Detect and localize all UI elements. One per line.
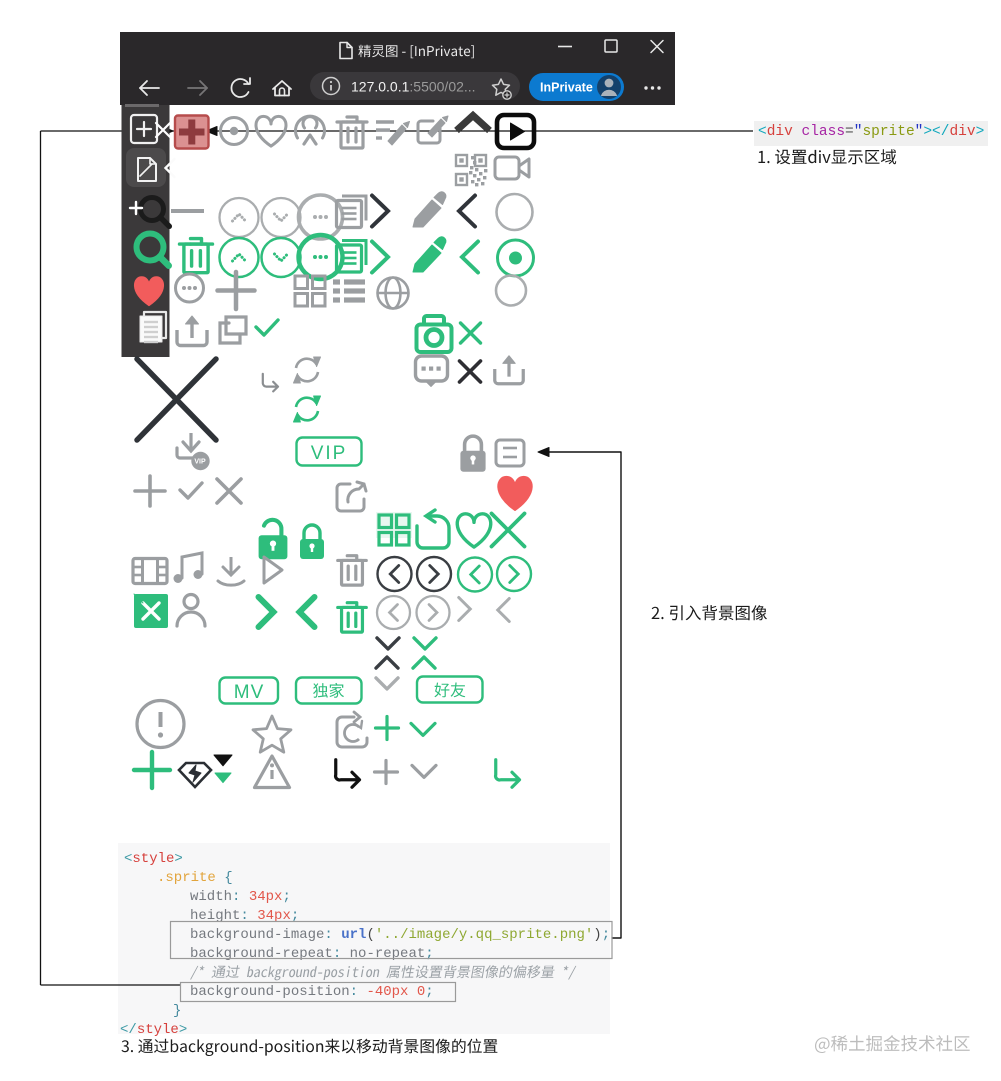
svg-text:MV: MV	[234, 682, 265, 703]
svg-text:127.0.0.1:5500/02...: 127.0.0.1:5500/02...	[351, 79, 476, 95]
svg-text:VIP: VIP	[311, 443, 348, 464]
svg-text:VIP: VIP	[194, 459, 206, 466]
svg-text:InPrivate: InPrivate	[540, 81, 593, 95]
